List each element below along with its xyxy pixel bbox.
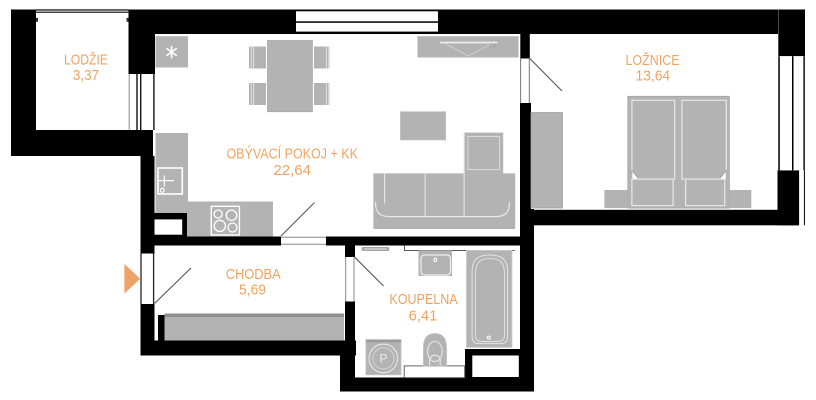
svg-text:22,64: 22,64 (273, 163, 311, 179)
svg-text:P: P (379, 352, 387, 366)
svg-text:LODŽIE: LODŽIE (64, 51, 108, 68)
svg-text:CHODBA: CHODBA (226, 267, 281, 283)
svg-text:OBÝVACÍ POKOJ + KK: OBÝVACÍ POKOJ + KK (226, 146, 358, 163)
svg-text:3,37: 3,37 (73, 68, 99, 84)
svg-text:TV: TV (489, 44, 497, 50)
svg-text:6,41: 6,41 (409, 308, 438, 324)
svg-text:KOUPELNA: KOUPELNA (389, 292, 457, 308)
svg-text:5,69: 5,69 (239, 282, 266, 298)
svg-text:LOŽNICE: LOŽNICE (626, 52, 680, 69)
svg-text:13,64: 13,64 (636, 69, 671, 85)
